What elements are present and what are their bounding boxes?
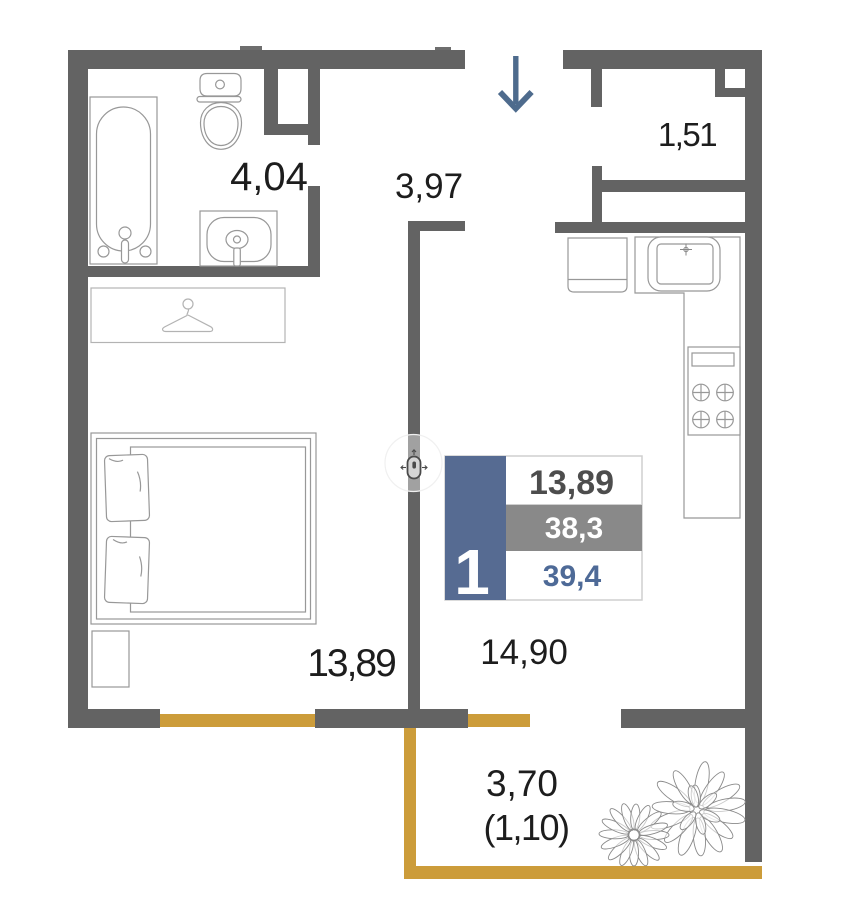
svg-text:13,89: 13,89 — [529, 464, 614, 502]
svg-text:14,90: 14,90 — [480, 633, 568, 672]
svg-text:4,04: 4,04 — [230, 155, 308, 199]
svg-text:39,4: 39,4 — [543, 560, 602, 593]
svg-text:38,3: 38,3 — [545, 512, 603, 545]
svg-text:1,51: 1,51 — [658, 116, 716, 153]
svg-text:1: 1 — [454, 536, 490, 608]
svg-text:3,97: 3,97 — [395, 167, 463, 206]
svg-text:3,70: 3,70 — [486, 763, 558, 804]
svg-text:(1,10): (1,10) — [483, 807, 568, 848]
svg-text:13,89: 13,89 — [307, 642, 395, 685]
